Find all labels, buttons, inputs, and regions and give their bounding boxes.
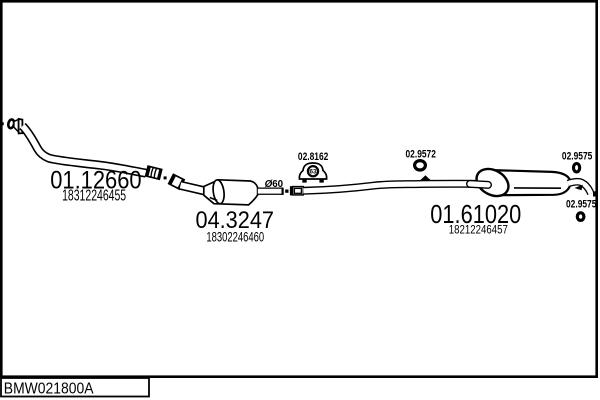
svg-text:18312246455: 18312246455 [62,186,126,204]
svg-text:02.9572: 02.9572 [406,149,436,161]
svg-text:Ø60: Ø60 [265,179,284,190]
svg-text:63: 63 [309,169,317,176]
svg-text:18212246457: 18212246457 [449,223,508,236]
svg-text:02.8162: 02.8162 [298,151,328,163]
svg-text:02.9575: 02.9575 [566,199,597,211]
svg-text:02.9575: 02.9575 [562,150,593,162]
svg-text:BMW021800A: BMW021800A [4,379,94,397]
svg-text:18302246460: 18302246460 [206,230,264,245]
